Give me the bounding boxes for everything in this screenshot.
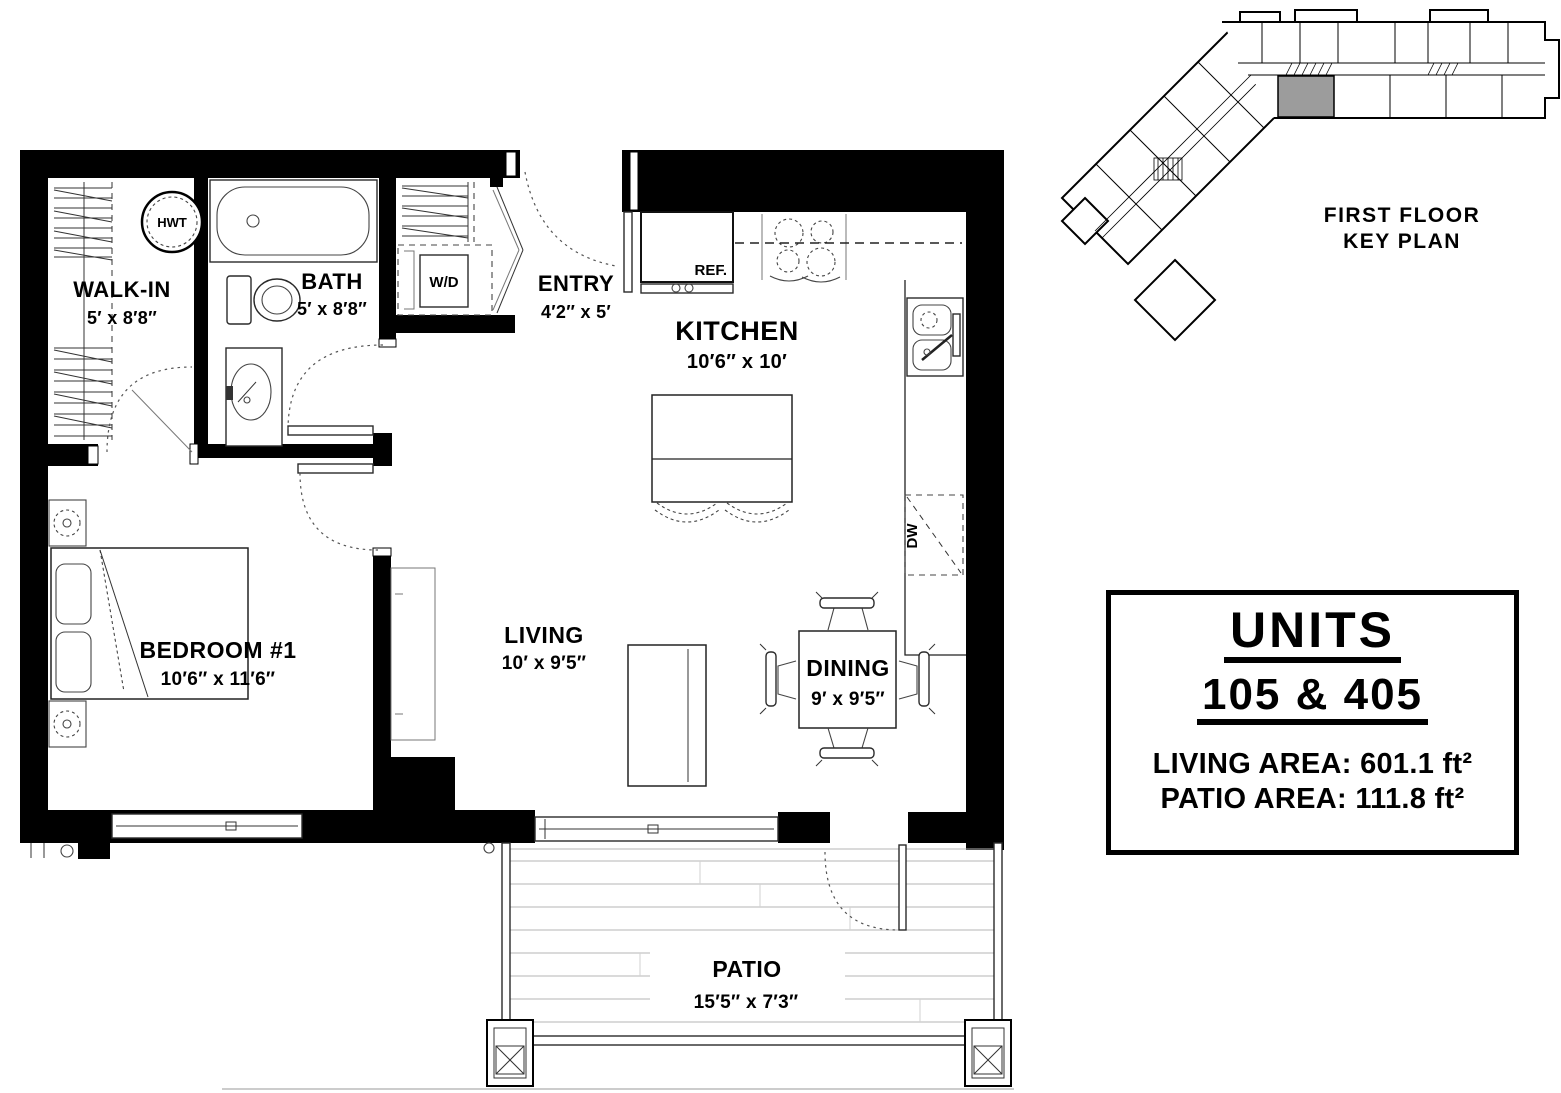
room-dims-kitchen: 10′6″ x 10′ [687,351,787,373]
key-plan: FIRST FLOOR KEY PLAN [1062,10,1559,340]
refrigerator [624,212,733,293]
room-label-dining: DINING [806,655,890,681]
dining-chair [760,644,796,714]
bath-door [288,345,383,435]
wd-label: W/D [429,274,458,291]
walkin-door [107,367,192,452]
bathtub [210,180,377,262]
room-label-bedroom1: BEDROOM #1 [139,637,296,663]
nightstand [49,701,86,747]
room-dims-bath: 5′ x 8′8″ [297,299,367,319]
room-dims-dining: 9′ x 9′5″ [811,689,885,710]
bedroom-window [112,814,302,838]
key-plan-highlighted-unit [1278,76,1334,117]
sofa [628,645,706,786]
room-label-patio: PATIO [712,956,781,982]
toilet-icon [227,276,300,324]
key-plan-title-line2: KEY PLAN [1343,230,1461,253]
patio-door [484,843,906,930]
room-dims-entry: 4′2″ x 5′ [541,302,611,322]
room-label-bath: BATH [301,269,362,294]
kitchen-island [652,395,792,502]
room-label-kitchen: KITCHEN [675,316,799,346]
key-plan-stairs [1154,158,1182,180]
room-label-living: LIVING [504,622,584,648]
room-label-entry: ENTRY [538,271,614,296]
info-box-units: 105 & 405 [1197,671,1428,725]
patio-area-line: PATIO AREA: 111.8 ft² [1161,782,1465,817]
info-box: UNITS 105 & 405 LIVING AREA: 601.1 ft² P… [1106,590,1519,855]
bar-stool [725,503,789,522]
room-dims-patio: 15′5″ x 7′3″ [694,992,799,1013]
room-dims-walkin: 5′ x 8′8″ [87,308,157,328]
bar-stool [655,503,719,522]
entry-closet-shelving [402,182,474,242]
living-area-label: LIVING AREA: [1153,748,1352,780]
floor-plan: WALK-IN 5′ x 8′8″ BATH 5′ x 8′8″ ENTRY 4… [0,0,1561,1093]
room-label-walkin: WALK-IN [73,277,171,302]
hwt-label: HWT [157,215,187,230]
entry-door-swing [525,172,616,266]
room-dims-living: 10′ x 9′5″ [502,653,587,674]
patio-area-value: 111.8 ft² [1355,783,1464,815]
kitchen-sink [907,298,963,376]
vanity-sink [226,348,282,446]
living-area-value: 601.1 ft² [1360,748,1472,780]
ref-label: REF. [694,262,727,279]
patio-area-label: PATIO AREA: [1161,783,1347,815]
patio-post [487,1020,533,1086]
tv-console [391,568,435,740]
dw-label: DW [904,523,921,549]
room-dims-bedroom1: 10′6″ x 11′6″ [161,669,276,690]
nightstand [49,500,86,546]
patio-post [965,1020,1011,1086]
living-window [535,817,778,841]
bedroom-door [298,464,378,550]
dining-chair [816,728,878,766]
key-plan-title-line1: FIRST FLOOR [1324,204,1481,227]
dining-chair [816,592,878,630]
closet-bifold-door [493,187,523,313]
living-area-line: LIVING AREA: 601.1 ft² [1153,747,1473,782]
stove [762,214,846,282]
info-box-title: UNITS [1224,603,1401,663]
